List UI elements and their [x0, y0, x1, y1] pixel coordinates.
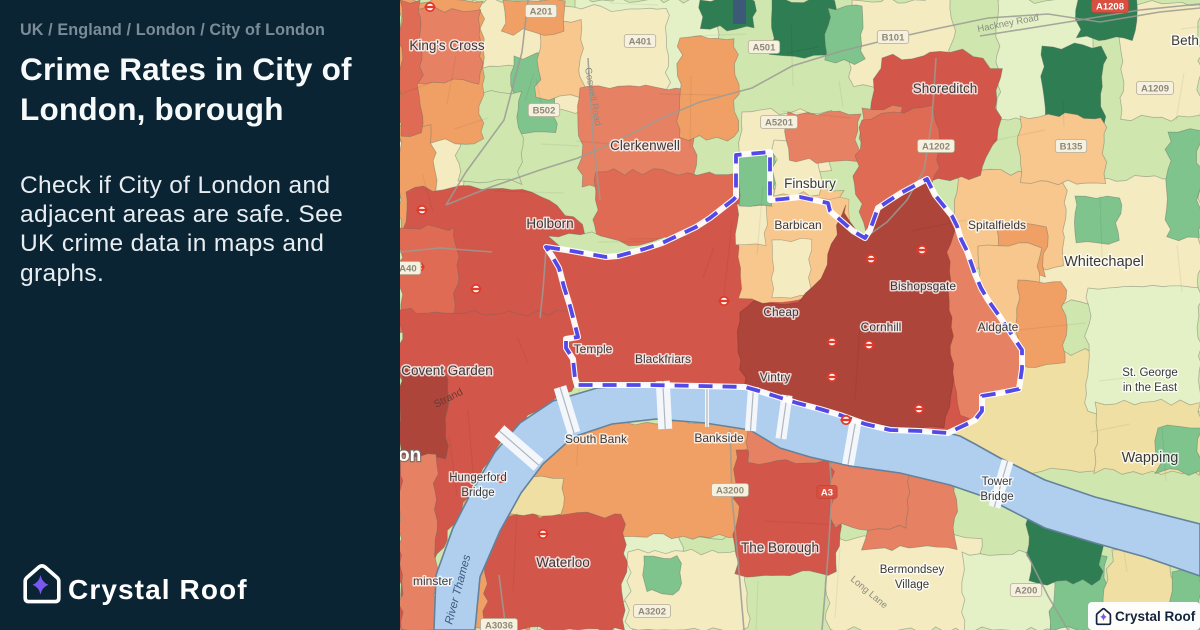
svg-text:A3036: A3036	[485, 621, 513, 630]
svg-text:Wapping: Wapping	[1122, 450, 1179, 466]
svg-text:South Bank: South Bank	[565, 432, 628, 446]
svg-text:Spitalfields: Spitalfields	[968, 218, 1026, 232]
svg-text:Cornhill: Cornhill	[861, 320, 902, 334]
svg-text:B135: B135	[1060, 142, 1083, 153]
svg-text:Bridge: Bridge	[980, 491, 1013, 503]
svg-text:Clerkenwell: Clerkenwell	[610, 138, 680, 153]
svg-text:A501: A501	[753, 43, 776, 54]
svg-text:Blackfriars: Blackfriars	[635, 352, 691, 366]
svg-text:A1209: A1209	[1141, 84, 1169, 95]
svg-text:Tower: Tower	[982, 476, 1013, 488]
svg-text:minster: minster	[413, 574, 452, 588]
svg-text:Village: Village	[895, 579, 929, 591]
svg-text:A401: A401	[629, 37, 652, 48]
svg-text:A40: A40	[400, 264, 417, 275]
svg-text:Whitechapel: Whitechapel	[1064, 254, 1144, 270]
svg-text:A200: A200	[1015, 586, 1038, 597]
svg-text:St. George: St. George	[1122, 367, 1178, 379]
svg-text:Cheap: Cheap	[763, 305, 799, 319]
svg-text:Aldgate: Aldgate	[978, 320, 1019, 334]
svg-text:Barbican: Barbican	[774, 218, 821, 232]
svg-text:Beth: Beth	[1171, 33, 1199, 48]
svg-text:Shoreditch: Shoreditch	[913, 81, 978, 96]
svg-text:Hungerford: Hungerford	[449, 472, 507, 484]
svg-text:A5201: A5201	[765, 118, 794, 129]
svg-text:Bermondsey: Bermondsey	[880, 564, 945, 576]
svg-text:A3: A3	[821, 488, 833, 499]
svg-text:Temple: Temple	[574, 342, 613, 356]
svg-text:on: on	[400, 445, 421, 466]
svg-text:Vintry: Vintry	[760, 370, 790, 384]
svg-text:A201: A201	[530, 7, 553, 18]
svg-text:Covent Garden: Covent Garden	[401, 363, 493, 378]
svg-text:Bridge: Bridge	[461, 487, 494, 499]
svg-text:Bankside: Bankside	[694, 431, 744, 445]
svg-text:in the East: in the East	[1123, 382, 1178, 394]
svg-text:A3200: A3200	[716, 486, 744, 497]
svg-text:A3202: A3202	[638, 607, 666, 618]
svg-text:B502: B502	[533, 106, 556, 117]
svg-text:Crystal Roof: Crystal Roof	[1115, 609, 1196, 624]
svg-text:A1208: A1208	[1096, 2, 1124, 13]
svg-text:A1202: A1202	[922, 142, 950, 153]
svg-text:B101: B101	[882, 33, 905, 44]
svg-text:King's Cross: King's Cross	[409, 38, 485, 53]
svg-text:Holborn: Holborn	[526, 216, 573, 231]
svg-text:The Borough: The Borough	[741, 540, 819, 555]
svg-text:Finsbury: Finsbury	[784, 176, 836, 191]
svg-text:Waterloo: Waterloo	[536, 555, 590, 570]
svg-text:Bishopsgate: Bishopsgate	[890, 279, 956, 293]
